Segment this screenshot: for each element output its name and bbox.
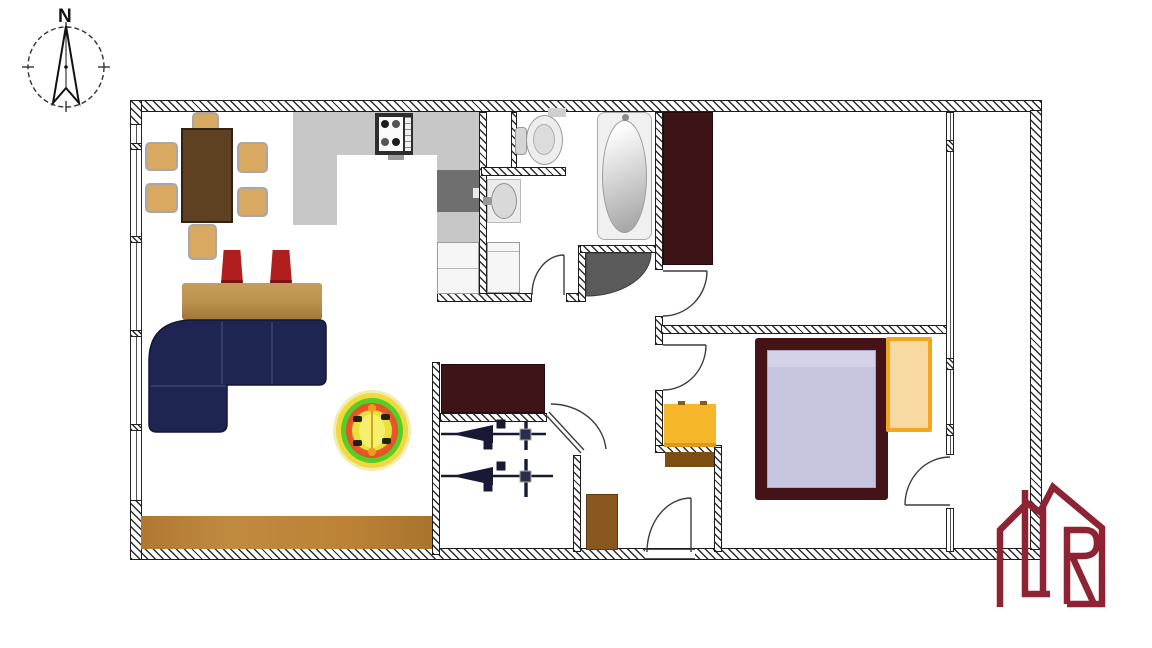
- plan-overlay: N: [0, 0, 1152, 648]
- door-arc-balcony: [905, 457, 950, 505]
- logo-letter-r: [1067, 530, 1097, 604]
- door-shadow-bathroom: [586, 253, 651, 296]
- compass-center-dot: [64, 65, 68, 69]
- logo-house-r: [1000, 487, 1102, 607]
- floor-plan-page: N: [0, 0, 1152, 648]
- door-arc-entry: [647, 498, 691, 552]
- door-arc-stairroom: [551, 404, 606, 449]
- compass-north-label: N: [58, 6, 72, 27]
- door-swings: [532, 255, 950, 552]
- stair-arrows: [441, 420, 553, 497]
- sofa-sectional: [149, 320, 326, 432]
- door-arc-hall-bath: [532, 255, 564, 295]
- door-arc-bedroom2: [663, 345, 706, 390]
- door-arc-bedroom1: [663, 271, 707, 316]
- door-leaf-stairroom: [546, 412, 584, 453]
- compass-rose: N: [22, 6, 110, 112]
